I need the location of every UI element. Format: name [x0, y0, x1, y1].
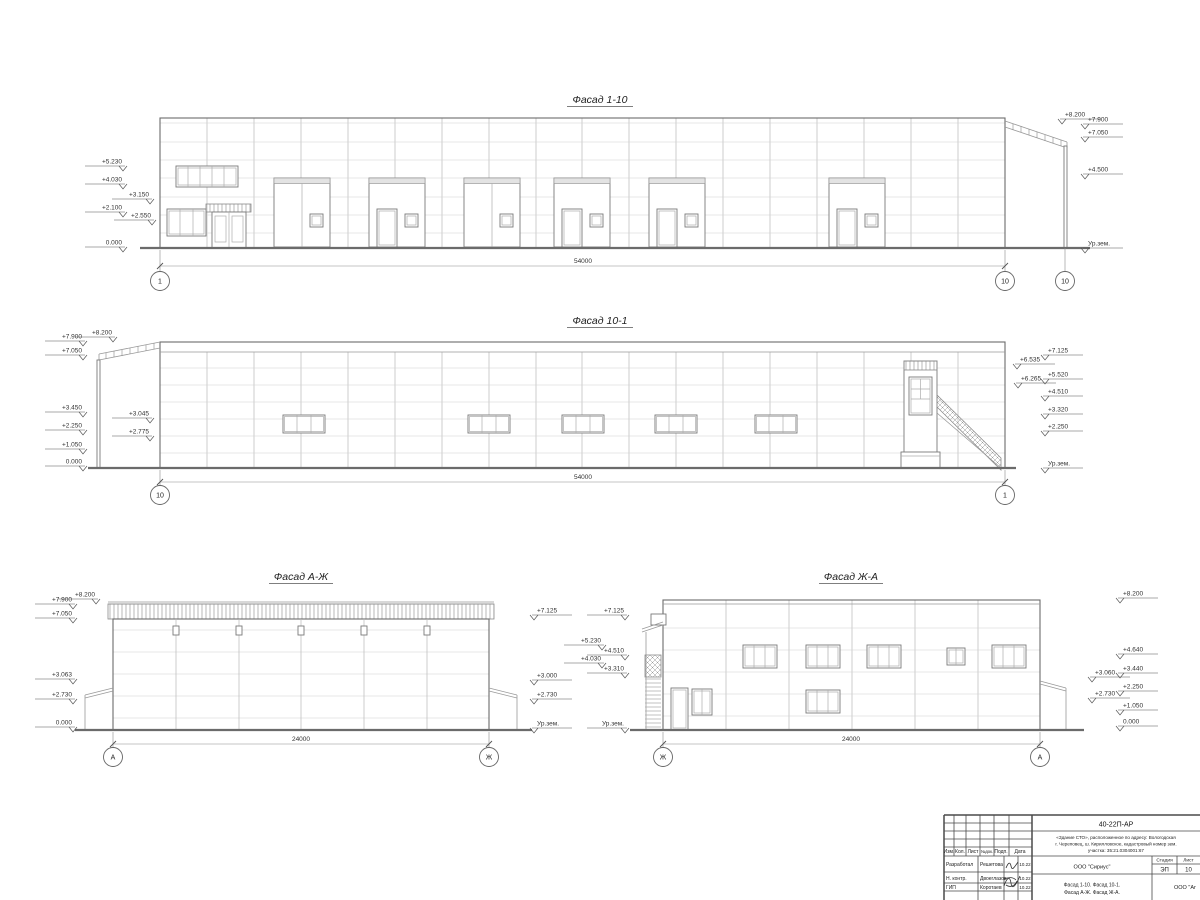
facade-zh-a: Фасад Ж-А 24000 Ж А +7.125 +5.230 +4.51: [564, 571, 1158, 767]
elevation-label: +2.730: [1095, 691, 1115, 698]
gate: [554, 178, 610, 247]
roof-band: [108, 604, 494, 619]
elevation-mark: +5.520: [1041, 372, 1083, 385]
elevation-label: 0.000: [66, 459, 83, 466]
gate: [274, 178, 330, 247]
side-annex: [1040, 681, 1066, 730]
elevation-mark: +3.063: [35, 672, 77, 685]
stair-stringer: [937, 413, 1001, 468]
axis-label: 1: [158, 279, 162, 286]
elevation-mark: +7.900: [1081, 117, 1123, 130]
elevation-label: +5.230: [581, 638, 601, 645]
elevation-mark: +7.900: [35, 597, 77, 610]
building-outline: [663, 600, 1040, 730]
row-date: 10.22: [1019, 876, 1031, 881]
project-line: участка: 35:21.0304001:67: [1088, 848, 1144, 853]
elevation-mark: +5.230: [85, 159, 127, 172]
elevation-label: +8.200: [1065, 112, 1085, 119]
axis-label: 10: [1061, 279, 1069, 286]
elevation-label: Ур.зем.: [1088, 241, 1110, 248]
row-role: ГИП: [946, 885, 956, 891]
elevation-mark: Ур.зем.: [1081, 241, 1123, 254]
stair-steps: [645, 679, 661, 727]
sheet-label: Лист: [1183, 858, 1194, 864]
elevation-label: +7.125: [1048, 348, 1068, 355]
elevation-mark: +2.730: [1088, 691, 1130, 704]
facades-drawing-sheet: Фасад 1-10: [0, 0, 1200, 900]
elevation-label: +1.050: [1123, 703, 1143, 710]
axis-marker: 1: [151, 272, 170, 291]
window: [167, 209, 206, 236]
gate: [464, 178, 520, 247]
elevation-label: +3.310: [604, 666, 624, 673]
gate: [649, 178, 705, 247]
elevation-mark: +8.200: [1116, 591, 1158, 604]
window: [992, 645, 1026, 668]
elevation-mark: +2.550: [114, 213, 156, 226]
ribbon-window: [176, 166, 238, 187]
window: [806, 690, 840, 713]
elevation-label: Ур.зем.: [537, 721, 559, 728]
signature: [1006, 862, 1018, 869]
window: [806, 645, 840, 668]
col-header: Лист: [968, 849, 980, 855]
axis-marker: 10: [996, 272, 1015, 291]
elevation-mark: +3.440: [1116, 666, 1158, 679]
elevation-label: +3.320: [1048, 407, 1068, 414]
row-date: 10.22: [1019, 885, 1031, 890]
axis-label: 1: [1003, 493, 1007, 500]
elevation-label: +6.535: [1020, 357, 1040, 364]
facade-1-10: Фасад 1-10: [85, 94, 1123, 291]
gate: [369, 178, 425, 247]
elevation-label: +2.550: [131, 213, 151, 220]
panel-joints-horizontal: [160, 368, 1005, 453]
elevation-label: +3.150: [129, 192, 149, 199]
elevation-label: +2.730: [52, 692, 72, 699]
elevation-label: +6.265: [1021, 376, 1041, 383]
elevation-label: +4.510: [604, 648, 624, 655]
elevation-label: +4.030: [581, 656, 601, 663]
elevation-mark: +3.320: [1041, 407, 1083, 420]
elevation-mark: +4.030: [564, 656, 606, 669]
tower-roof-band: [904, 361, 937, 370]
gate: [829, 178, 885, 247]
row-name: Коротаев: [980, 885, 1002, 891]
elevation-mark: +7.125: [530, 608, 572, 621]
sheet-number: 10: [1185, 868, 1192, 874]
col-header: Дата: [1014, 849, 1025, 855]
elevation-mark: 0.000: [45, 459, 87, 472]
elevation-mark: +2.730: [35, 692, 77, 705]
col-header: Изм.: [944, 849, 955, 855]
col-header: Подп.: [994, 849, 1007, 855]
content-line: Фасад 1-10. Фасад 10-1.: [1064, 883, 1121, 889]
elevation-mark: +3.450: [45, 405, 87, 418]
elevation-mark: +4.030: [85, 177, 127, 190]
elevation-mark: Ур.зем.: [1041, 461, 1083, 474]
content-line: Фасад А-Ж. Фасад Ж-А.: [1064, 890, 1120, 896]
elevation-label: +7.050: [52, 611, 72, 618]
elevation-label: +4.030: [102, 177, 122, 184]
elevation-mark: +4.510: [1041, 389, 1083, 402]
stair-railing: [645, 655, 661, 677]
elevation-mark: +2.100: [85, 205, 127, 218]
side-canopy: [1005, 121, 1067, 248]
elevation-mark: Ур.зем.: [587, 721, 629, 734]
dimension-label: 54000: [574, 258, 592, 265]
window: [947, 648, 965, 665]
elevation-label: 0.000: [106, 240, 123, 247]
org-name: ООО "Сириус": [1074, 865, 1111, 871]
dimension-label: 54000: [574, 474, 592, 481]
elevation-label: +2.250: [62, 423, 82, 430]
org2-name: ООО "Аг: [1174, 885, 1196, 891]
entrance-door: [206, 204, 251, 248]
window: [562, 415, 604, 433]
axis-marker: 1: [996, 486, 1015, 505]
side-canopy: [97, 342, 160, 468]
external-stair: [937, 395, 1001, 470]
elevation-mark: +2.775: [112, 429, 154, 442]
elevation-label: +3.440: [1123, 666, 1143, 673]
row-name: Решетова: [980, 862, 1003, 868]
title-block: Изм. Кол. Лист №док. Подп. Дата Разработ…: [944, 815, 1200, 900]
extension-lines: [160, 248, 1065, 271]
elevation-label: +3.000: [537, 673, 557, 680]
row-name: Двоеглазов: [980, 876, 1007, 882]
elevation-label: +7.125: [604, 608, 624, 615]
elevation-label: +2.250: [1123, 684, 1143, 691]
elevation-mark: +7.050: [1081, 130, 1123, 143]
elevation-label: +2.775: [129, 429, 149, 436]
elevation-label: +7.900: [1088, 117, 1108, 124]
elevation-mark: +7.050: [45, 348, 87, 361]
elevation-label: +7.050: [62, 348, 82, 355]
elevation-label: 0.000: [56, 720, 73, 727]
row-role: Разработал: [946, 862, 973, 868]
elevation-label: +7.900: [52, 597, 72, 604]
elevation-mark: 0.000: [85, 240, 127, 253]
stair-railing: [937, 395, 1001, 470]
elevation-label: +2.730: [537, 692, 557, 699]
door: [671, 688, 688, 730]
axis-label: 10: [156, 493, 164, 500]
elevation-label: 0.000: [1123, 719, 1140, 726]
elevation-label: +4.500: [1088, 167, 1108, 174]
elevation-mark: +5.230: [564, 638, 606, 651]
canopy-column: [1064, 146, 1067, 248]
stair-tower: [901, 361, 940, 468]
elevation-label: +2.250: [1048, 424, 1068, 431]
window: [655, 415, 697, 433]
window: [692, 689, 712, 715]
window: [468, 415, 510, 433]
facade-title: Фасад Ж-А: [824, 571, 878, 583]
dimension-label: 24000: [292, 736, 310, 743]
elevation-mark: +3.000: [530, 673, 572, 686]
stage-label: Стадия: [1156, 858, 1173, 864]
elevation-mark: 0.000: [35, 720, 77, 733]
axis-marker: 10: [1056, 272, 1075, 291]
axis-marker: 10: [151, 486, 170, 505]
elevation-label: +3.450: [62, 405, 82, 412]
elevation-label: +8.200: [1123, 591, 1143, 598]
project-line: «Здание СТО», расположенное по адресу: В…: [1056, 835, 1176, 840]
axis-marker: Ж: [654, 748, 673, 767]
elevation-mark: +1.050: [1116, 703, 1158, 716]
elevation-mark: +7.900: [45, 334, 87, 347]
side-annex: [489, 688, 517, 730]
elevation-mark: 0.000: [1116, 719, 1158, 732]
elevation-mark: +4.500: [1081, 167, 1123, 180]
building-outline: [160, 342, 1005, 468]
elevation-label: +7.125: [537, 608, 557, 615]
panel-joints-vertical: [207, 352, 958, 468]
external-stair: [642, 622, 663, 730]
window: [755, 415, 797, 433]
facade-title: Фасад 10-1: [572, 315, 627, 327]
elevation-mark: +2.250: [1041, 424, 1083, 437]
elevation-mark: +2.250: [45, 423, 87, 436]
window: [743, 645, 777, 668]
elevation-mark: +7.050: [35, 611, 77, 624]
dimension-label: 24000: [842, 736, 860, 743]
elevation-mark: Ур.зем.: [530, 721, 572, 734]
panel-joints-horizontal: [663, 628, 1040, 716]
axis-label: А: [1038, 755, 1043, 762]
elevation-mark: +3.310: [587, 666, 629, 679]
axis-marker: А: [1031, 748, 1050, 767]
facade-title: Фасад 1-10: [572, 94, 627, 106]
elevation-label: +2.100: [102, 205, 122, 212]
elevation-mark: +2.730: [530, 692, 572, 705]
side-annex: [85, 688, 113, 730]
elevation-label: +3.045: [129, 411, 149, 418]
elevation-label: +8.200: [92, 330, 112, 337]
col-header: №док.: [981, 849, 993, 854]
stage-value: ЭП: [1160, 868, 1169, 874]
elevation-mark: +4.640: [1116, 647, 1158, 660]
elevation-mark: +2.250: [1116, 684, 1158, 697]
row-date: 10.22: [1019, 862, 1031, 867]
col-header: Кол.: [955, 849, 965, 855]
elevation-label: +4.510: [1048, 389, 1068, 396]
axis-label: Ж: [660, 755, 667, 762]
elevation-label: Ур.зем.: [1048, 461, 1070, 468]
canopy-column: [97, 360, 100, 468]
entrance-canopy: [206, 204, 251, 212]
window: [867, 645, 901, 668]
axis-label: 10: [1001, 279, 1009, 286]
elevation-mark: +3.150: [112, 192, 154, 205]
elevation-label: +5.230: [102, 159, 122, 166]
elevation-mark: +6.535: [1013, 357, 1055, 370]
window: [283, 415, 325, 433]
elevation-label: +3.063: [52, 672, 72, 679]
elevation-label: Ур.зем.: [602, 721, 624, 728]
facade-a-zh: Фасад А-Ж 24000 А Ж +7.900 +8.200 +7.050…: [35, 571, 572, 767]
stair-pedestal: [901, 452, 940, 468]
elevation-mark: +1.050: [45, 442, 87, 455]
column-brackets: [173, 626, 430, 635]
columns: [176, 619, 427, 730]
axis-label: А: [111, 755, 116, 762]
elevation-label: +7.050: [1088, 130, 1108, 137]
doc-number: 40-22П-АР: [1099, 822, 1134, 829]
project-line: г. Череповец, ш. Кирилловское, кадастров…: [1055, 841, 1176, 847]
facade-10-1: Фасад 10-1: [45, 315, 1083, 505]
elevation-label: +4.640: [1123, 647, 1143, 654]
elevation-mark: +3.045: [112, 411, 154, 424]
elevation-label: +8.200: [75, 592, 95, 599]
row-role: Н. контр.: [946, 876, 967, 882]
axis-label: Ж: [486, 755, 493, 762]
elevation-label: +1.050: [62, 442, 82, 449]
axis-marker: А: [104, 748, 123, 767]
axis-marker: Ж: [480, 748, 499, 767]
elevation-mark: +7.125: [1041, 348, 1083, 361]
elevation-mark: +7.125: [587, 608, 629, 621]
elevation-label: +3.060: [1095, 670, 1115, 677]
facade-title: Фасад А-Ж: [274, 571, 329, 583]
elevation-label: +5.520: [1048, 372, 1068, 379]
